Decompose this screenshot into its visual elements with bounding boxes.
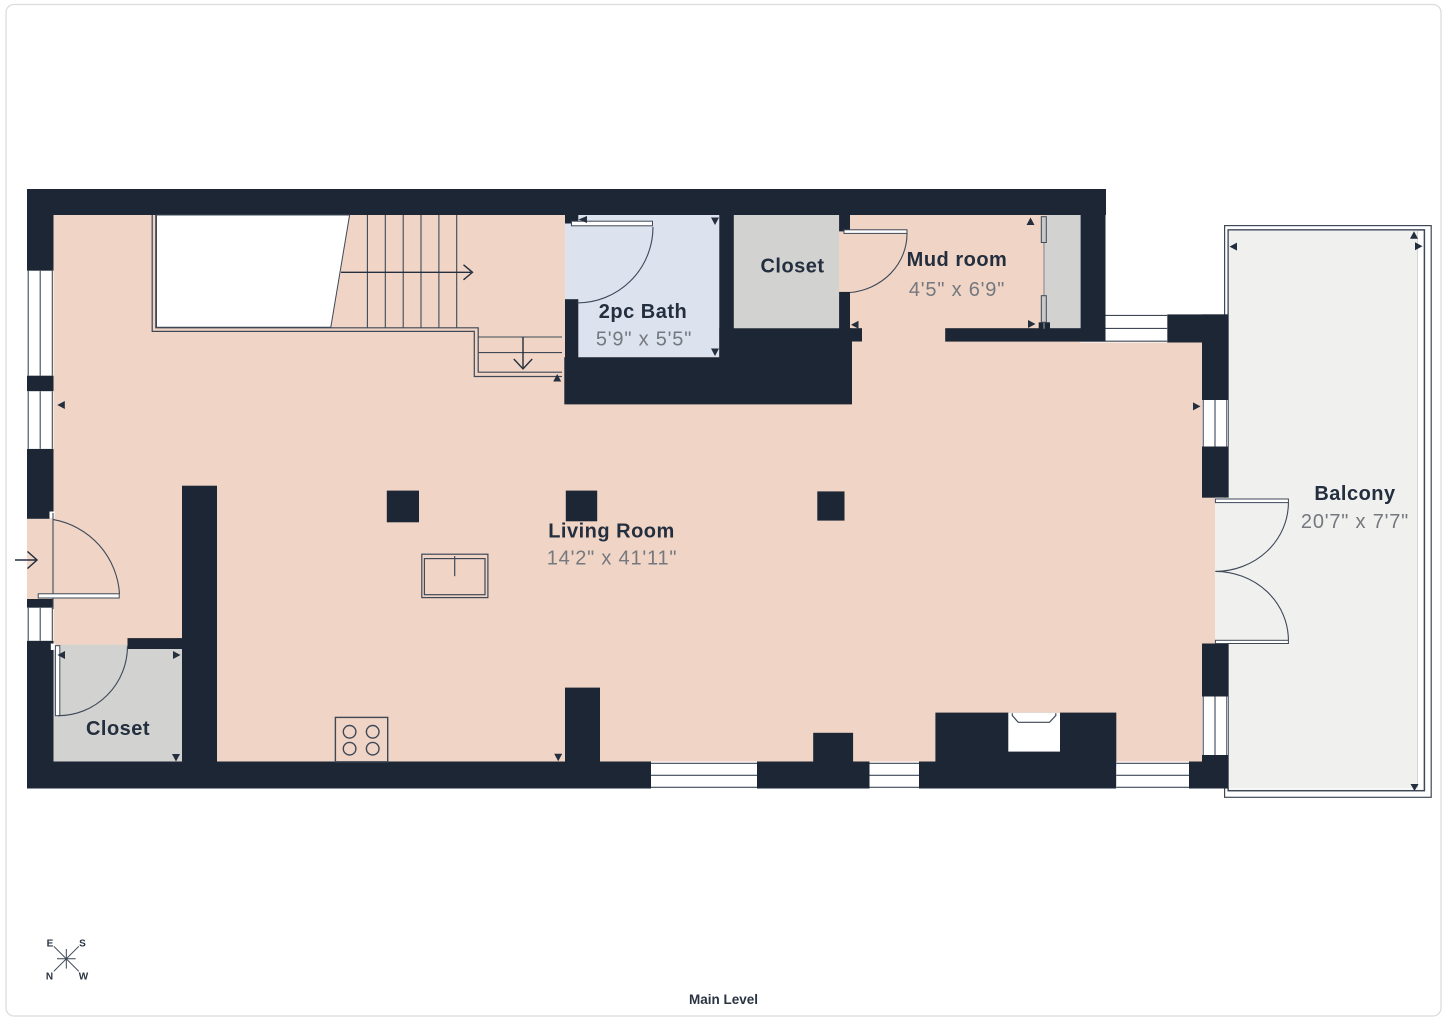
svg-text:Closet: Closet	[760, 256, 824, 278]
svg-text:2pc Bath: 2pc Bath	[599, 301, 687, 323]
svg-text:N: N	[46, 972, 53, 983]
svg-text:E: E	[47, 939, 54, 950]
svg-text:Closet: Closet	[86, 718, 150, 740]
svg-text:Main Level: Main Level	[689, 992, 758, 1007]
svg-text:14'2" x 41'11": 14'2" x 41'11"	[547, 548, 678, 570]
svg-text:W: W	[79, 972, 89, 983]
svg-text:5'9" x 5'5": 5'9" x 5'5"	[596, 329, 692, 351]
svg-text:4'5" x 6'9": 4'5" x 6'9"	[909, 279, 1005, 301]
svg-text:Balcony: Balcony	[1314, 483, 1396, 505]
svg-text:20'7" x 7'7": 20'7" x 7'7"	[1301, 511, 1409, 533]
svg-text:S: S	[79, 939, 86, 950]
svg-text:Living Room: Living Room	[548, 521, 675, 543]
svg-text:Mud room: Mud room	[907, 249, 1008, 271]
